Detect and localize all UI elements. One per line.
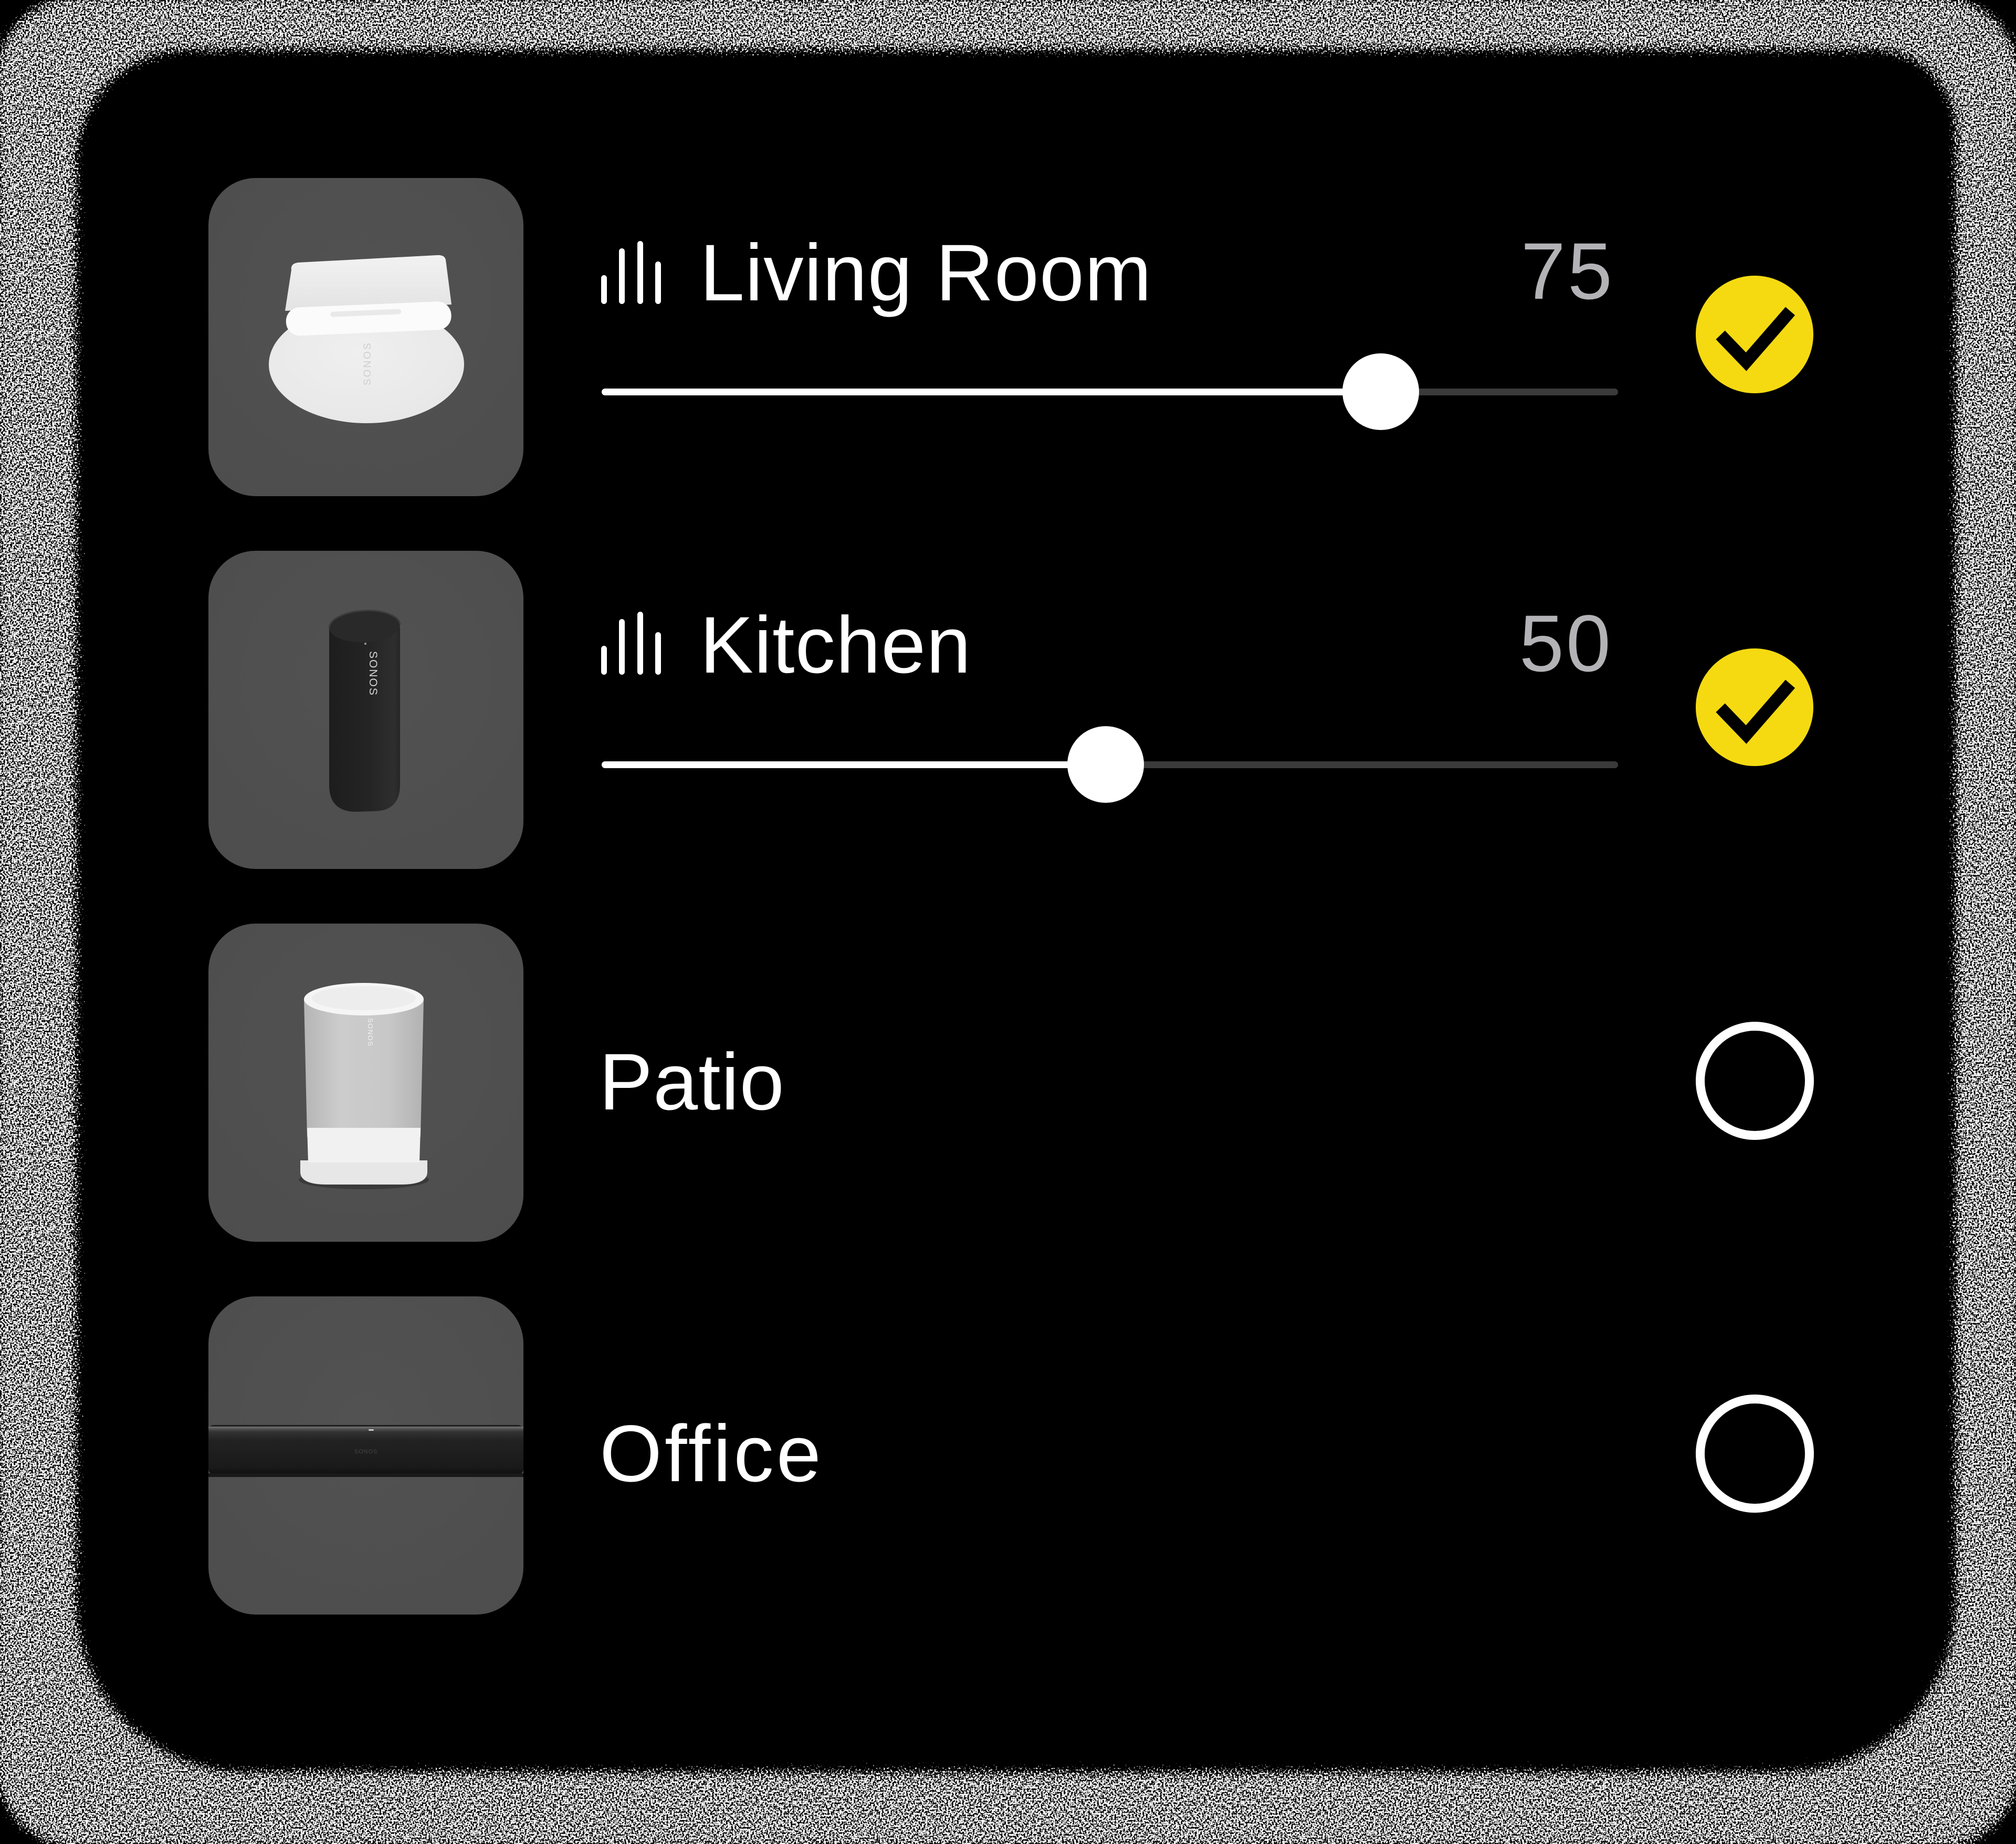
- svg-text:SONOS: SONOS: [354, 1449, 378, 1455]
- svg-text:SONOS: SONOS: [366, 1018, 374, 1046]
- svg-text:SONOS: SONOS: [362, 341, 373, 385]
- svg-text:SONOS: SONOS: [367, 651, 379, 696]
